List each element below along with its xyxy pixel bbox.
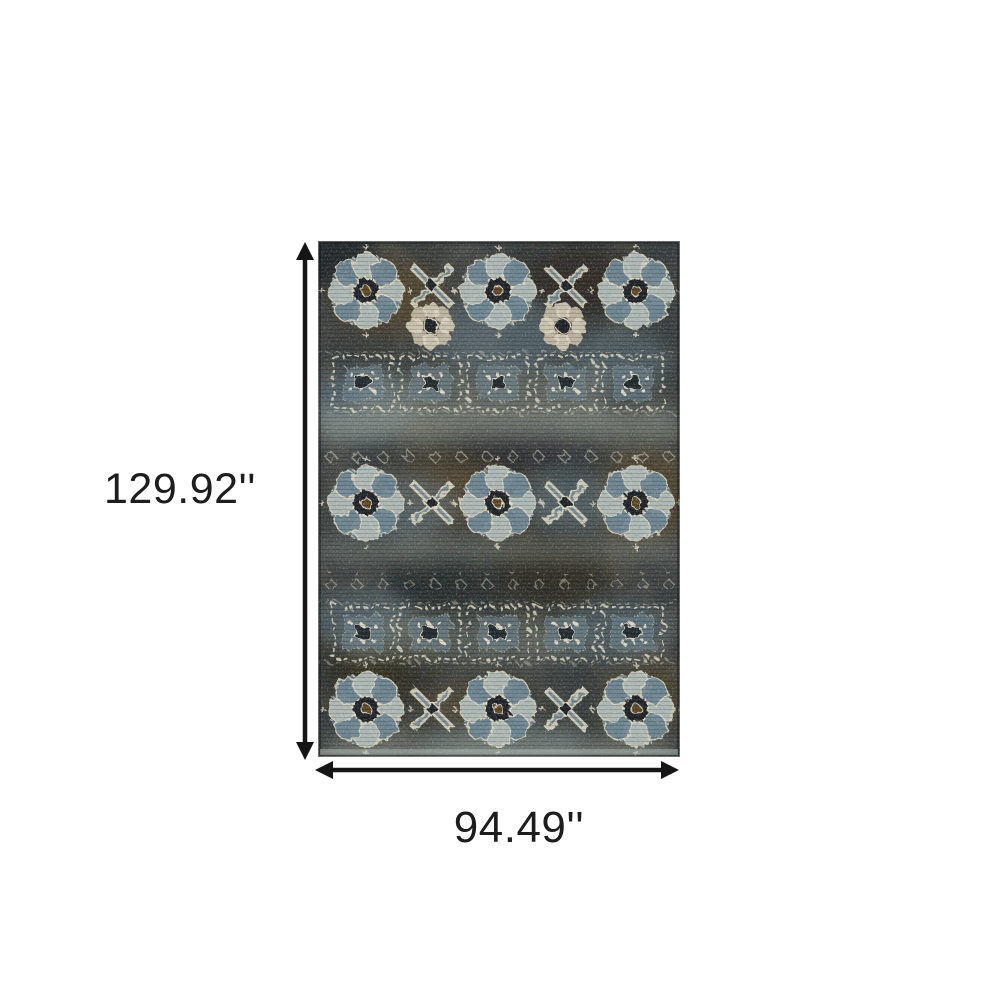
width-dimension-arrow [306, 759, 688, 781]
rug-pattern-graphic [318, 241, 680, 757]
height-dimension-arrow [292, 240, 318, 762]
height-dimension-label: 129.92'' [95, 461, 265, 517]
arrowhead-right-icon [661, 761, 679, 779]
arrowhead-down-icon [296, 742, 314, 760]
rug-image [318, 241, 680, 757]
arrowhead-up-icon [296, 242, 314, 260]
product-diagram-canvas: 129.92'' 94.49'' [0, 0, 1000, 1000]
width-dimension-label: 94.49'' [409, 799, 629, 857]
arrowhead-left-icon [315, 761, 333, 779]
